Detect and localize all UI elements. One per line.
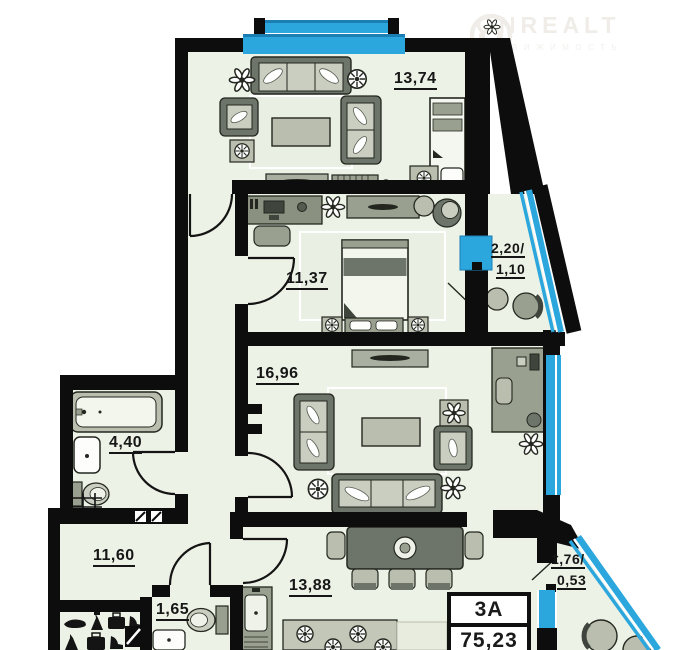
room-area-label-living-main: 16,96 [256,366,299,385]
toilet [187,606,228,634]
dresser [347,196,419,218]
armchair-left [220,98,258,136]
bed [342,240,408,320]
bag-icon [108,617,125,629]
plant-icon [308,479,327,498]
room-area-label-wc: 1,65 [156,602,189,621]
sofa-right [341,96,381,164]
kitchen-sink-unit [240,587,272,650]
bathroom-toilet [72,482,109,506]
desk-chair [496,378,512,404]
bedroom-balcony-window [460,236,492,270]
unit-type: 3А [451,596,527,627]
room-area-label-hallway: 11,60 [93,548,135,567]
room-area-label-balcony-bottom-1: 1,76/ [551,552,585,569]
bed-bench [345,318,403,333]
room-area-label-living-top: 13,74 [394,71,437,90]
sofa-bottom [332,474,442,514]
bag-icon [87,637,105,650]
balcony-bottom-window [539,590,555,628]
room-area-label-bathroom: 4,40 [109,435,142,454]
unit-info-box: 3А 75,23 [447,592,531,650]
room-area-label-balcony-top-1: 2,20/ [491,241,525,258]
floor-plan-page: ONREALT НЕДВИЖИМОСТЬ [0,0,700,650]
desk [492,348,544,432]
stool [486,288,508,310]
room-area-label-balcony-bottom-2: 0,53 [557,573,586,590]
room-area-label-balcony-top-2: 1,10 [496,262,525,279]
balcony-top-glazing [243,18,405,54]
bathroom-sink [74,437,100,473]
stove [283,620,397,650]
pouf [414,196,434,216]
bathtub [70,392,162,432]
coffee-table [272,118,330,146]
counter [397,622,447,650]
room-area-label-kitchen: 13,88 [289,578,332,597]
armchair [433,199,461,227]
living-main-window [546,355,561,495]
plant-icon [348,70,366,88]
sofa-top [251,57,351,94]
unit-total-area: 75,23 [451,627,527,650]
room-area-label-bedroom: 11,37 [286,271,328,290]
balcony-chair [513,293,541,319]
armchair [434,426,472,470]
loveseat [294,394,334,470]
desk-chair [254,226,290,246]
coffee-table [362,418,420,446]
